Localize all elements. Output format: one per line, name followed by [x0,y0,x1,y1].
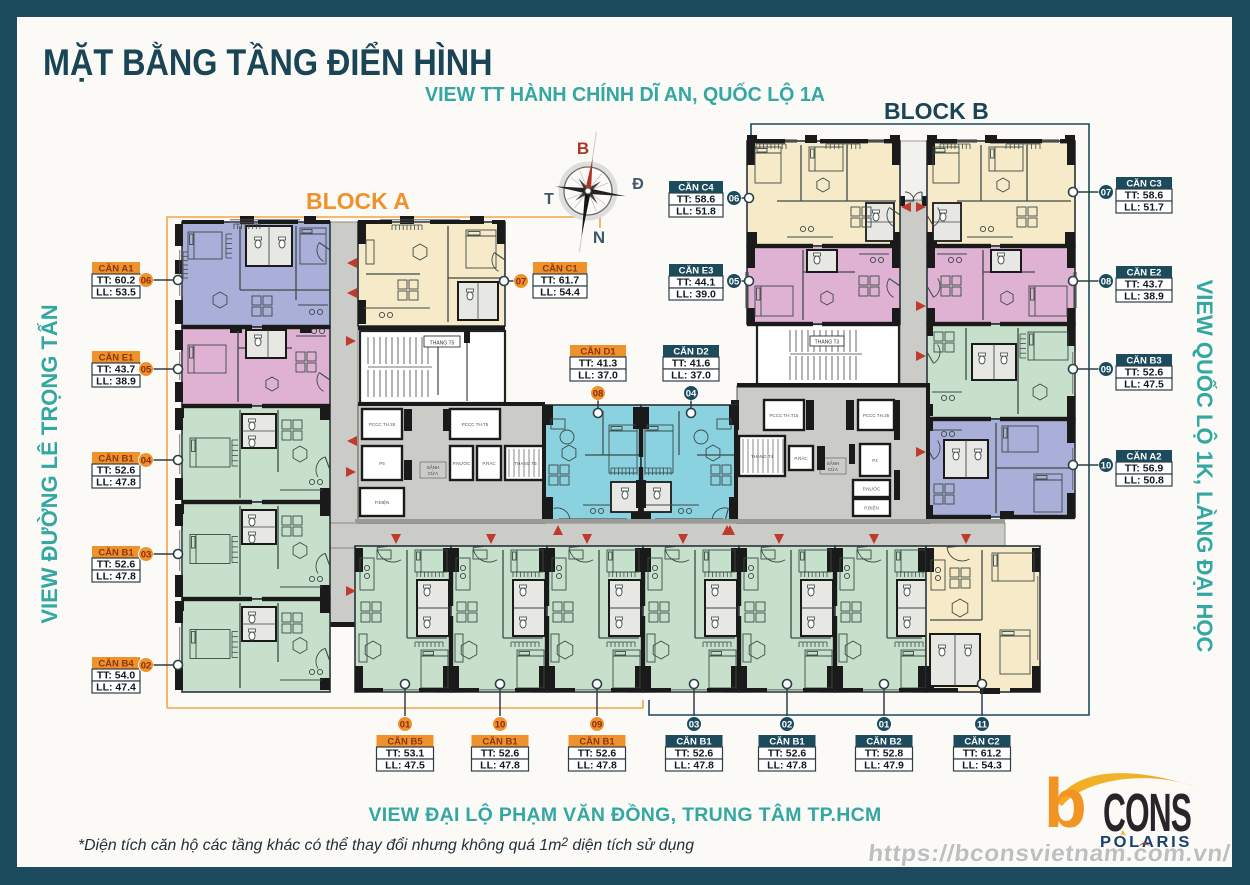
svg-text:01: 01 [400,719,411,730]
svg-text:LL: 47.8: LL: 47.8 [767,760,807,772]
svg-text:06: 06 [141,275,152,286]
svg-text:P.ĐIỆN: P.ĐIỆN [864,504,878,511]
svg-text:05: 05 [141,364,152,375]
svg-text:THANG T5: THANG T5 [514,461,537,466]
svg-text:b: b [1044,764,1087,842]
svg-text:03: 03 [141,549,152,560]
svg-text:03: 03 [689,719,700,730]
svg-text:LL: 51.8: LL: 51.8 [676,206,716,218]
svg-text:CĂN B1: CĂN B1 [769,737,805,748]
svg-text:LL: 47.8: LL: 47.8 [674,760,714,772]
svg-text:TT: 61.2: TT: 61.2 [963,748,1002,760]
svg-text:TT: 56.9: TT: 56.9 [1125,463,1164,475]
svg-text:CĂN C1: CĂN C1 [542,264,578,275]
svg-text:LL: 47.8: LL: 47.8 [96,477,136,489]
svg-text:CỬA: CỬA [428,470,438,476]
svg-text:04: 04 [686,388,697,399]
svg-text:P.NƯỚC: P.NƯỚC [863,486,882,492]
svg-text:P.ĐIỆN: P.ĐIỆN [375,498,389,505]
svg-text:07: 07 [1101,187,1112,198]
svg-text:LL: 39.0: LL: 39.0 [676,289,716,301]
svg-text:LL: 37.0: LL: 37.0 [671,370,711,382]
svg-text:P.NƯỚC: P.NƯỚC [453,460,472,466]
svg-text:SẢNH: SẢNH [427,464,440,470]
svg-text:https://bconsvietnam.com.vn/: https://bconsvietnam.com.vn/ [867,840,1232,866]
svg-text:06: 06 [729,193,740,204]
svg-text:P.RÁC: P.RÁC [482,460,496,466]
svg-text:BLOCK A: BLOCK A [306,188,410,214]
svg-text:TT: 58.6: TT: 58.6 [1125,190,1164,202]
svg-text:02: 02 [782,719,793,730]
svg-text:TT: 52.6: TT: 52.6 [578,748,617,760]
svg-text:CĂN C2: CĂN C2 [964,737,999,748]
svg-text:THANG T5: THANG T5 [430,341,455,347]
svg-text:THANG T4: THANG T4 [751,454,774,459]
svg-text:TT: 41.3: TT: 41.3 [579,358,618,370]
svg-text:09: 09 [592,719,603,730]
svg-text:CĂN D2: CĂN D2 [673,347,708,358]
svg-text:TT: 43.7: TT: 43.7 [1125,279,1164,291]
svg-text:CĂN E2: CĂN E2 [1127,268,1162,279]
svg-text:10: 10 [1101,460,1112,471]
svg-text:LL: 47.5: LL: 47.5 [385,760,425,772]
svg-text:SẢNH: SẢNH [827,460,840,466]
svg-text:CĂN B1: CĂN B1 [579,737,615,748]
svg-text:TT: 52.6: TT: 52.6 [481,748,520,760]
svg-text:TT: 54.0: TT: 54.0 [97,670,136,682]
svg-text:09: 09 [1101,364,1112,375]
svg-text:TT: 52.6: TT: 52.6 [97,465,136,477]
svg-text:LL: 47.9: LL: 47.9 [864,760,904,772]
svg-text:CĂN E1: CĂN E1 [99,353,135,364]
svg-text:P.RÁC: P.RÁC [794,455,808,461]
svg-text:*Diện tích căn hộ các tầng khá: *Diện tích căn hộ các tầng khác có thể t… [78,835,694,854]
svg-text:TT: 60.2: TT: 60.2 [97,275,136,287]
svg-text:CỬA: CỬA [828,466,838,472]
svg-text:LL: 38.9: LL: 38.9 [96,376,136,388]
svg-text:PCCC TH.26: PCCC TH.26 [863,413,890,418]
svg-text:LL: 53.5: LL: 53.5 [96,287,136,299]
svg-text:PCCC TH.T15: PCCC TH.T15 [770,413,799,418]
svg-text:CĂN C4: CĂN C4 [678,183,714,194]
svg-text:TT: 52.6: TT: 52.6 [1125,367,1164,379]
svg-text:05: 05 [729,276,740,287]
svg-text:VIEW ĐƯỜNG LÊ TRỌNG TẤN: VIEW ĐƯỜNG LÊ TRỌNG TẤN [37,304,62,623]
svg-text:CĂN B1: CĂN B1 [98,454,134,465]
svg-text:LL: 51.7: LL: 51.7 [1124,202,1164,214]
svg-text:08: 08 [593,388,604,399]
svg-text:TT: 43.7: TT: 43.7 [97,364,136,376]
svg-text:PCCC TH.T5: PCCC TH.T5 [462,422,489,427]
svg-text:CĂN E3: CĂN E3 [679,266,714,277]
svg-text:CĂN B1: CĂN B1 [482,737,518,748]
svg-text:BLOCK B: BLOCK B [884,98,989,124]
svg-text:CĂN B5: CĂN B5 [387,737,423,748]
svg-text:MẶT BẰNG TẦNG ĐIỂN HÌNH: MẶT BẰNG TẦNG ĐIỂN HÌNH [43,41,492,84]
svg-text:LL: 47.8: LL: 47.8 [96,571,136,583]
svg-text:TT: 58.6: TT: 58.6 [677,194,716,206]
svg-text:P5: P5 [379,461,385,466]
svg-text:TT: 41.6: TT: 41.6 [672,358,711,370]
svg-text:LL: 50.8: LL: 50.8 [1124,475,1164,487]
svg-text:LL: 47.8: LL: 47.8 [577,760,617,772]
svg-text:CĂN C3: CĂN C3 [1126,179,1161,190]
svg-text:TT: 52.8: TT: 52.8 [865,748,904,760]
svg-text:02: 02 [141,660,152,671]
svg-text:LL: 47.4: LL: 47.4 [96,682,136,694]
svg-text:CĂN B1: CĂN B1 [98,548,134,559]
svg-text:10: 10 [495,719,506,730]
svg-text:04: 04 [141,455,152,466]
svg-text:CĂN B2: CĂN B2 [866,737,901,748]
svg-text:Đ: Đ [632,176,644,193]
svg-text:08: 08 [1101,276,1112,287]
svg-text:CĂN A1: CĂN A1 [98,264,134,275]
svg-text:VIEW TT HÀNH CHÍNH DĨ AN, QUỐC: VIEW TT HÀNH CHÍNH DĨ AN, QUỐC LỘ 1A [425,82,825,106]
svg-text:VIEW QUỐC LỘ 1K, LÀNG ĐẠI HỌC: VIEW QUỐC LỘ 1K, LÀNG ĐẠI HỌC [1192,280,1218,653]
svg-text:VIEW ĐẠI LỘ PHẠM VĂN ĐỒNG, TRU: VIEW ĐẠI LỘ PHẠM VĂN ĐỒNG, TRUNG TÂM TP.… [368,802,881,826]
svg-text:TT: 44.1: TT: 44.1 [677,277,716,289]
svg-text:TT: 52.6: TT: 52.6 [97,559,136,571]
svg-text:CĂN B3: CĂN B3 [1126,356,1161,367]
svg-text:LL: 47.5: LL: 47.5 [1124,379,1164,391]
svg-text:P4: P4 [872,458,878,463]
svg-text:11: 11 [977,719,988,730]
svg-text:01: 01 [879,719,890,730]
svg-text:LL: 47.8: LL: 47.8 [480,760,520,772]
svg-text:TT: 52.6: TT: 52.6 [675,748,714,760]
svg-text:CĂN B4: CĂN B4 [98,659,134,670]
svg-text:TT: 53.1: TT: 53.1 [386,748,425,760]
svg-text:07: 07 [516,276,527,287]
svg-text:LL: 54.3: LL: 54.3 [962,760,1002,772]
svg-text:TT: 52.6: TT: 52.6 [768,748,807,760]
svg-text:LL: 37.0: LL: 37.0 [578,370,618,382]
svg-text:LL: 54.4: LL: 54.4 [540,287,580,299]
svg-text:N: N [593,228,605,247]
svg-text:LL: 38.9: LL: 38.9 [1124,291,1164,303]
svg-text:THANG T3: THANG T3 [815,340,840,346]
svg-text:CĂN B1: CĂN B1 [676,737,712,748]
svg-text:CĂN A2: CĂN A2 [1126,452,1161,463]
svg-text:PCCC TH.28: PCCC TH.28 [369,422,396,427]
svg-text:B: B [577,139,589,158]
svg-text:T: T [544,191,554,208]
svg-text:CĂN D1: CĂN D1 [580,347,616,358]
svg-text:TT: 61.7: TT: 61.7 [541,275,580,287]
